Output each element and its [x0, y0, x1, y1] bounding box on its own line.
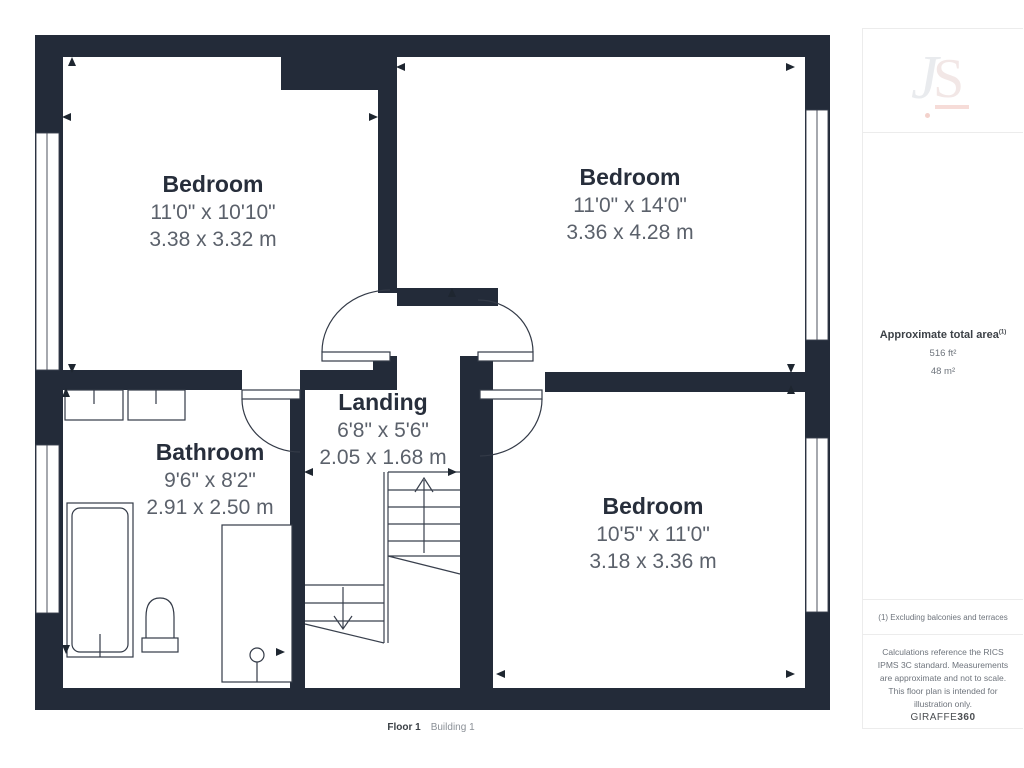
giraffe360-brand: GIRAFFE360: [863, 712, 1023, 723]
door-leaf: [322, 352, 390, 361]
sink: [128, 390, 185, 420]
door-leaf: [242, 390, 300, 399]
disclaimer-text: Calculations reference the RICS IPMS 3C …: [872, 646, 1014, 711]
floorplan-page: Bedroom 11'0" x 10'10" 3.38 x 3.32 m Bed…: [0, 0, 1024, 768]
bathtub: [67, 503, 133, 657]
room-dimensions-imperial: 6'8" x 5'6": [319, 417, 446, 444]
door-arc: [478, 300, 533, 352]
js-logo: J S: [903, 43, 983, 121]
room-dimensions-metric: 3.36 x 4.28 m: [566, 219, 693, 246]
floor-label: Floor 1: [387, 722, 420, 733]
logo-section: J S: [863, 29, 1023, 133]
stair-arrow-up: [415, 478, 433, 553]
door-arc: [322, 290, 390, 352]
area-note-marker: (1): [999, 329, 1006, 335]
room-dimensions-metric: 2.05 x 1.68 m: [319, 444, 446, 471]
room-dimensions-imperial: 11'0" x 14'0": [566, 192, 693, 219]
area-metric: 48 m²: [863, 366, 1023, 377]
room-dimensions-metric: 3.38 x 3.32 m: [149, 226, 276, 253]
exclusion-note: (1) Excluding balconies and terraces: [863, 599, 1023, 635]
info-sidebar: J S Approximate total area(1) 516 ft² 48…: [862, 28, 1023, 729]
walls: [35, 35, 830, 710]
sink: [65, 390, 123, 420]
room-label-bedroom1: Bedroom 11'0" x 10'10" 3.38 x 3.32 m: [149, 170, 276, 253]
staircase: [305, 472, 460, 643]
room-dimensions-imperial: 11'0" x 10'10": [149, 199, 276, 226]
logo-letter-s: S: [933, 45, 964, 113]
door-leaf: [480, 390, 542, 399]
room-name: Bathroom: [146, 438, 273, 467]
dimension-arrows: [62, 57, 795, 678]
room-name: Bedroom: [566, 163, 693, 192]
room-name: Landing: [319, 388, 446, 417]
room-label-bathroom: Bathroom 9'6" x 8'2" 2.91 x 2.50 m: [146, 438, 273, 521]
window-bedroom2-right: [806, 110, 828, 340]
window-bedroom3-right: [806, 438, 828, 612]
door-bedroom2: [478, 300, 533, 361]
stair-treads-down-flight: [305, 585, 384, 643]
room-dimensions-metric: 2.91 x 2.50 m: [146, 494, 273, 521]
floor-plan-svg: [0, 0, 862, 768]
room-label-landing: Landing 6'8" x 5'6" 2.05 x 1.68 m: [319, 388, 446, 471]
logo-dot: [925, 113, 930, 118]
window-bathroom-left: [36, 445, 59, 613]
brand-suffix: 360: [957, 712, 975, 723]
window-bedroom1-left: [36, 133, 59, 370]
room-name: Bedroom: [589, 492, 716, 521]
room-dimensions-metric: 3.18 x 3.36 m: [589, 548, 716, 575]
stair-arrow-down: [334, 587, 352, 629]
logo-underline: [935, 105, 969, 109]
room-dimensions-imperial: 10'5" x 11'0": [589, 521, 716, 548]
door-leaf: [478, 352, 533, 361]
stair-divider: [384, 472, 388, 643]
room-label-bedroom3: Bedroom 10'5" x 11'0" 3.18 x 3.36 m: [589, 492, 716, 575]
building-label: Building 1: [431, 722, 475, 733]
bathroom-fixtures: [65, 390, 292, 682]
area-title: Approximate total area(1): [863, 329, 1023, 341]
room-name: Bedroom: [149, 170, 276, 199]
plan-footer: Floor 1Building 1: [0, 722, 862, 733]
door-bedroom1: [322, 290, 390, 361]
area-section: Approximate total area(1) 516 ft² 48 m²: [863, 329, 1023, 377]
area-title-text: Approximate total area: [880, 329, 999, 341]
area-imperial: 516 ft²: [863, 348, 1023, 359]
brand-name: GIRAFFE: [910, 712, 957, 723]
toilet: [142, 598, 178, 652]
room-label-bedroom2: Bedroom 11'0" x 14'0" 3.36 x 4.28 m: [566, 163, 693, 246]
room-dimensions-imperial: 9'6" x 8'2": [146, 467, 273, 494]
shower: [222, 525, 292, 682]
